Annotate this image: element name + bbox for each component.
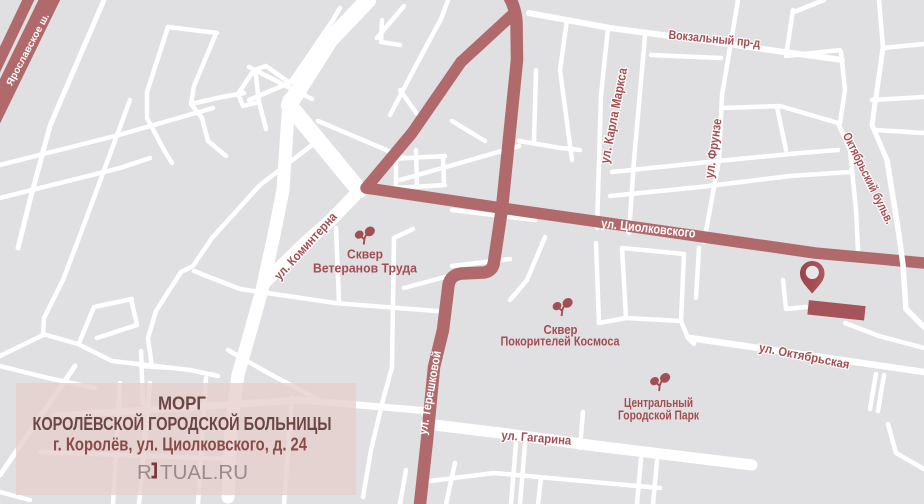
svg-text:Сквер: Сквер [347,247,383,262]
svg-text:Ветеранов Труда: Ветеранов Труда [313,261,418,276]
svg-text:TUAL.RU: TUAL.RU [160,461,248,484]
svg-text:Городской Парк: Городской Парк [618,408,699,423]
svg-text:R: R [137,461,152,484]
svg-text:КОРОЛЁВСКОЙ ГОРОДСКОЙ БОЛЬНИЦЫ: КОРОЛЁВСКОЙ ГОРОДСКОЙ БОЛЬНИЦЫ [33,413,332,434]
svg-text:г. Королёв, ул. Циолковского,: г. Королёв, ул. Циолковского, д. 24 [53,434,308,455]
svg-text:Покорителей Космоса: Покорителей Космоса [501,334,621,349]
svg-text:МОРГ: МОРГ [158,393,206,414]
